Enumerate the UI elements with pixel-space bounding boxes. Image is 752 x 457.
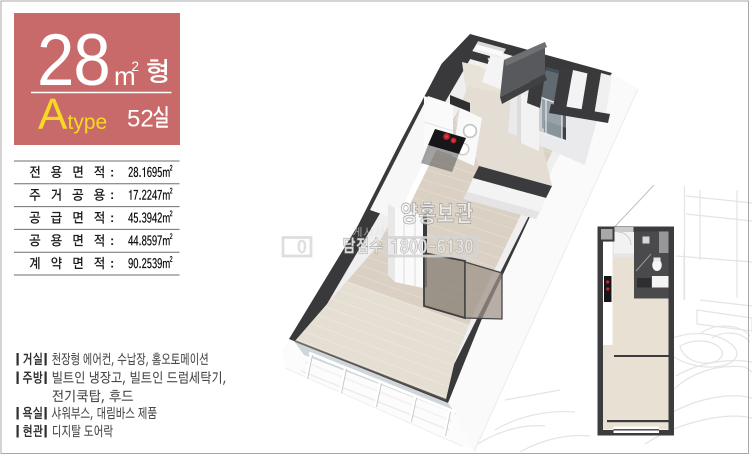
svg-text::: :	[110, 256, 114, 271]
svg-text::: :	[110, 210, 114, 225]
svg-text::: :	[110, 164, 114, 179]
svg-text::: :	[110, 233, 114, 248]
svg-text:type: type	[68, 111, 108, 134]
svg-text:A: A	[38, 90, 68, 139]
svg-text:28: 28	[37, 19, 110, 100]
svg-text::: :	[110, 187, 114, 202]
svg-text:2: 2	[132, 59, 140, 74]
svg-text:52: 52	[127, 106, 154, 133]
